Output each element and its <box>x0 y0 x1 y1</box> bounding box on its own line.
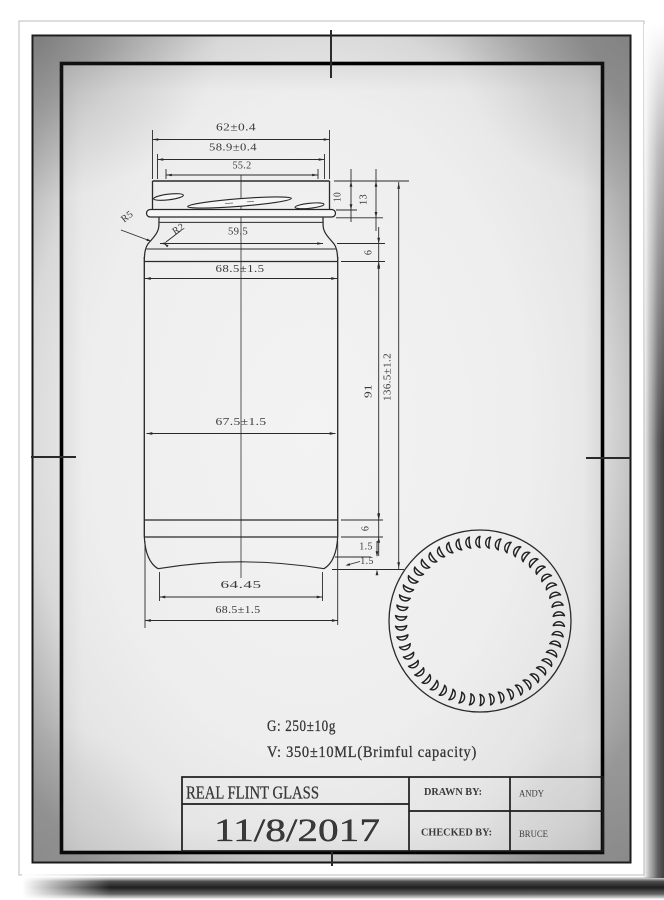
svg-text:10: 10 <box>333 192 344 202</box>
svg-text:68.5±1.5: 68.5±1.5 <box>216 264 265 275</box>
svg-text:55.2: 55.2 <box>233 161 252 172</box>
svg-text:DRAWN BY:: DRAWN BY: <box>424 786 482 798</box>
svg-text:CHECKED BY:: CHECKED BY: <box>421 827 492 839</box>
svg-text:ANDY: ANDY <box>519 790 544 800</box>
svg-text:REAL FLINT GLASS: REAL FLINT GLASS <box>186 783 319 803</box>
svg-text:V: 350±10ML(Brimful capacity): V: 350±10ML(Brimful capacity) <box>267 744 477 761</box>
svg-text:62±0.4: 62±0.4 <box>216 123 256 134</box>
svg-text:G: 250±10g: G: 250±10g <box>267 718 336 735</box>
svg-text:1.5: 1.5 <box>360 556 373 567</box>
svg-text:6: 6 <box>364 250 375 255</box>
svg-text:136.5±1.2: 136.5±1.2 <box>383 353 394 401</box>
svg-text:68.5±1.5: 68.5±1.5 <box>216 605 261 616</box>
svg-text:1.5: 1.5 <box>359 542 372 553</box>
svg-text:58.9±0.4: 58.9±0.4 <box>209 143 257 154</box>
svg-text:91: 91 <box>364 384 375 398</box>
svg-text:13: 13 <box>359 194 370 205</box>
svg-text:59.5: 59.5 <box>228 227 248 238</box>
svg-text:64.45: 64.45 <box>221 580 262 591</box>
svg-text:67.5±1.5: 67.5±1.5 <box>216 417 267 428</box>
svg-text:11/8/2017: 11/8/2017 <box>214 813 380 849</box>
svg-text:6: 6 <box>361 526 372 531</box>
svg-text:BRUCE: BRUCE <box>519 830 548 840</box>
